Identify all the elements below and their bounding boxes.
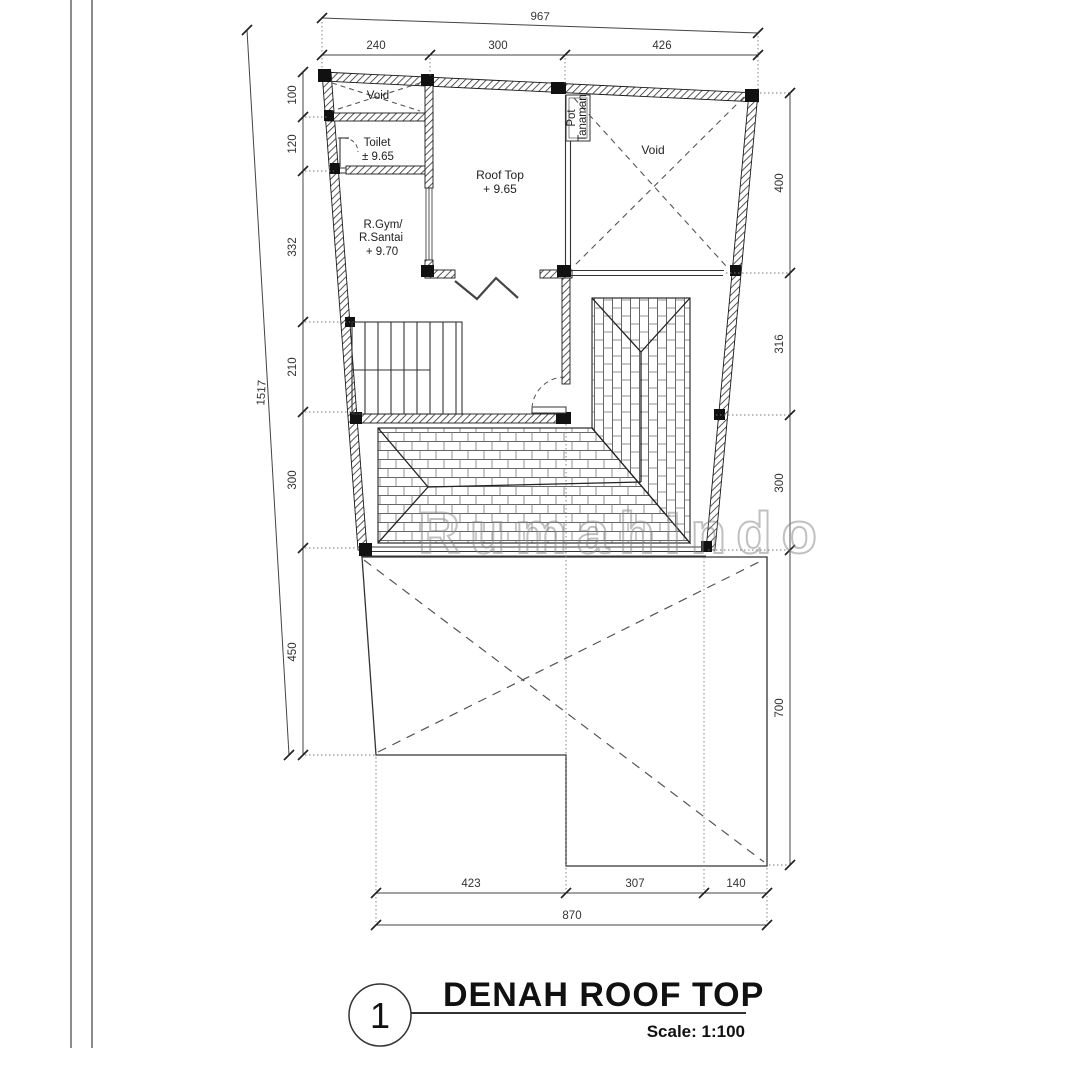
dim-left-300: 300 bbox=[287, 470, 299, 489]
floorplan-sheet: 967 240 300 426 1517 100 120 332 210 300… bbox=[0, 0, 1080, 1080]
label-rooftop-level: + 9.65 bbox=[483, 182, 517, 196]
dim-right-316: 316 bbox=[774, 334, 786, 353]
title-block: 1 DENAH ROOF TOP Scale: 1:100 bbox=[349, 976, 764, 1046]
dim-top-300: 300 bbox=[488, 40, 507, 52]
dim-top-total: 967 bbox=[530, 11, 550, 24]
drawing-title: DENAH ROOF TOP bbox=[443, 976, 764, 1014]
label-void-top: Void bbox=[367, 90, 389, 102]
tiled-roof bbox=[361, 298, 706, 556]
label-toilet-level: ± 9.65 bbox=[362, 151, 394, 163]
dim-top-426: 426 bbox=[652, 40, 671, 52]
dim-right-300: 300 bbox=[774, 473, 786, 492]
dim-left-332: 332 bbox=[287, 237, 299, 256]
floorplan-drawing: 967 240 300 426 1517 100 120 332 210 300… bbox=[0, 0, 1080, 1080]
void-cross-right bbox=[574, 97, 744, 266]
drawing-number: 1 bbox=[370, 995, 390, 1036]
dim-bottom-307: 307 bbox=[625, 878, 644, 890]
window-lines bbox=[426, 188, 432, 260]
toilet-fixture-arc bbox=[344, 138, 358, 152]
dim-left-120: 120 bbox=[287, 134, 299, 153]
dim-bottom-total: 870 bbox=[562, 910, 581, 922]
label-gym-1: R.Gym/ bbox=[364, 219, 404, 231]
dim-left-total: 1517 bbox=[255, 380, 269, 406]
label-gym-2: R.Santai bbox=[359, 232, 403, 244]
lower-roof-outline bbox=[362, 557, 767, 866]
dim-left-210: 210 bbox=[287, 357, 299, 376]
stair-break-line bbox=[455, 278, 518, 299]
left-wall bbox=[322, 72, 367, 550]
eave-lines bbox=[361, 547, 706, 556]
drawing-scale: Scale: 1:100 bbox=[647, 1022, 745, 1041]
dim-right-400: 400 bbox=[774, 173, 786, 192]
dim-left-450: 450 bbox=[287, 642, 299, 661]
door-lower-hall bbox=[532, 377, 566, 413]
label-rooftop: Roof Top bbox=[476, 168, 524, 182]
toilet-corner-lines bbox=[338, 138, 349, 167]
dim-bottom-140: 140 bbox=[726, 878, 745, 890]
label-planter-2: Tanaman bbox=[577, 94, 589, 141]
label-gym-level: + 9.70 bbox=[366, 246, 398, 258]
label-toilet: Toilet bbox=[364, 137, 392, 149]
interior-walls bbox=[327, 78, 572, 423]
dim-bottom-423: 423 bbox=[461, 878, 480, 890]
dim-right-700: 700 bbox=[774, 698, 786, 717]
right-wall bbox=[706, 93, 758, 550]
page-border-lines bbox=[71, 0, 92, 1048]
dim-left-100: 100 bbox=[287, 85, 299, 104]
dim-top-240: 240 bbox=[366, 40, 385, 52]
label-void-right: Void bbox=[641, 143, 664, 157]
stairs bbox=[352, 322, 462, 414]
